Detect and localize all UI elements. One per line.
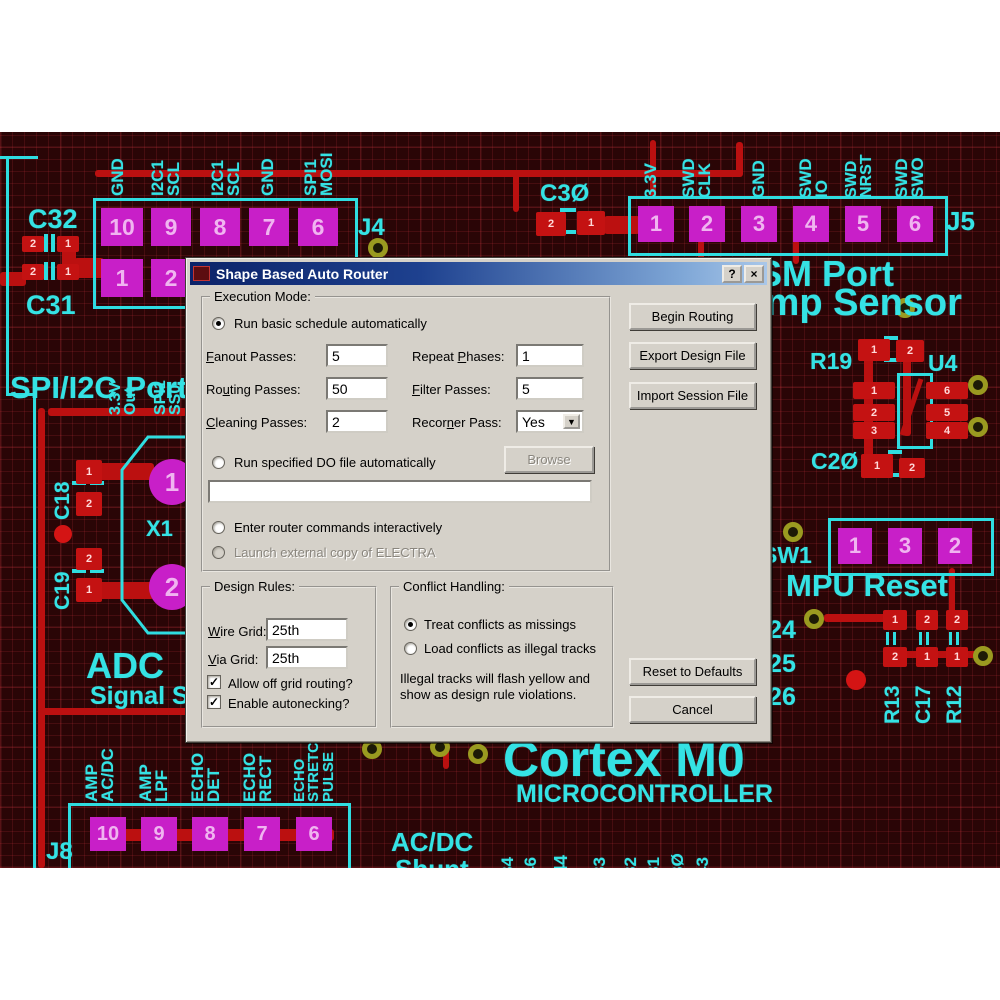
pin-pad[interactable]: 3 — [741, 206, 777, 242]
execution-mode-legend: Execution Mode: — [210, 289, 315, 304]
silk-mark — [51, 234, 55, 252]
pcb-silk-vlabel: C44 — [553, 855, 570, 868]
pcb-silk-label: X1 — [146, 518, 173, 540]
pin-pad[interactable]: 9 — [151, 208, 191, 246]
pcb-silk-vlabel: C19 — [53, 571, 73, 610]
dofile-path-input[interactable] — [208, 480, 592, 503]
pcb-silk-label: MPU Reset — [786, 570, 948, 601]
radio-interactive[interactable] — [212, 521, 225, 534]
smd-pad[interactable]: 1 — [577, 211, 605, 235]
pcb-silk-label: AC/DC — [391, 829, 473, 855]
via-pad — [968, 375, 988, 395]
smd-pad[interactable]: 2 — [22, 264, 44, 280]
silk-mark — [919, 632, 922, 645]
recorner-pass-dropdown[interactable]: Yes ▼ — [516, 410, 584, 433]
pcb-silk-label: C31 — [26, 292, 76, 319]
pin-pad[interactable]: 1 — [638, 206, 674, 242]
copper-trace — [98, 582, 154, 599]
smd-pad[interactable]: 1 — [861, 454, 893, 478]
pin-pad[interactable]: 1 — [838, 528, 872, 564]
cancel-button[interactable]: Cancel — [629, 696, 756, 723]
via-pad — [783, 522, 803, 542]
pin-pad[interactable]: 2 — [689, 206, 725, 242]
radio-conflicts-illegal[interactable] — [404, 642, 417, 655]
pcb-silk-vlabel: 43 — [695, 857, 711, 868]
dialog-titlebar[interactable]: Shape Based Auto Router ? × — [190, 262, 767, 285]
fanout-passes-input[interactable]: 5 — [326, 344, 388, 367]
pcb-silk-label: MICROCONTROLLER — [516, 782, 773, 807]
smd-pad[interactable]: 1 — [916, 647, 938, 667]
pcb-silk-vlabel: SWD CLK — [681, 158, 713, 198]
smd-pad[interactable]: 2 — [853, 404, 895, 421]
pcb-silk-label: J8 — [46, 840, 73, 864]
radio-conflicts-illegal-label: Load conflicts as illegal tracks — [424, 641, 596, 656]
pin-pad[interactable]: 10 — [90, 817, 126, 851]
design-rules-legend: Design Rules: — [210, 579, 299, 594]
offgrid-checkbox[interactable]: ✓ — [207, 675, 221, 689]
smd-pad[interactable]: 1 — [57, 236, 79, 252]
smd-pad[interactable]: 2 — [536, 212, 566, 236]
pin-pad[interactable]: 4 — [793, 206, 829, 242]
fanout-passes-label: Fanout Passes: — [206, 349, 296, 364]
pcb-silk-label: J5 — [946, 208, 975, 234]
pin-pad[interactable]: 1 — [101, 259, 143, 297]
pin-pad[interactable]: 8 — [192, 817, 228, 851]
conflict-handling-legend: Conflict Handling: — [399, 579, 509, 594]
pcb-silk-label: R19 — [810, 350, 852, 373]
copper-trace — [824, 614, 888, 622]
pin-pad[interactable]: 6 — [298, 208, 338, 246]
router-app-icon — [193, 266, 210, 281]
pcb-silk-vlabel: 31 — [646, 857, 662, 868]
smd-pad[interactable]: 2 — [946, 610, 968, 630]
dialog-title: Shape Based Auto Router — [216, 266, 720, 282]
pcb-silk-vlabel: 3.3V — [643, 163, 659, 198]
pcb-silk-vlabel: AMP AC/DC — [84, 748, 116, 802]
pcb-silk-vlabel: I2C1 SCL — [150, 160, 182, 196]
smd-pad[interactable]: 2 — [76, 492, 102, 516]
pcb-silk-vlabel: C18 — [53, 481, 73, 520]
smd-pad[interactable]: 1 — [946, 647, 968, 667]
silk-mark — [886, 632, 889, 645]
screenshot-stage: 2121211212365412122211122110987612123456… — [0, 0, 1000, 1000]
conflict-note-line2: show as design rule violations. — [400, 687, 576, 702]
silk-mark — [893, 632, 896, 645]
radio-run-dofile-label: Run specified DO file automatically — [234, 455, 436, 470]
pcb-silk-vlabel: R12 — [945, 685, 965, 724]
radio-conflicts-missings-label: Treat conflicts as missings — [424, 617, 576, 632]
import-session-file-button[interactable]: Import Session File — [629, 382, 756, 409]
pcb-silk-vlabel: ECHO DET — [190, 753, 222, 802]
silk-mark — [33, 393, 36, 868]
wire-grid-input[interactable]: 25th — [266, 618, 348, 641]
pcb-silk-vlabel: C17 — [914, 685, 934, 724]
smd-pad[interactable]: 2 — [916, 610, 938, 630]
pcb-silk-label: C3Ø — [540, 182, 589, 206]
copper-trace — [513, 170, 519, 212]
help-button[interactable]: ? — [722, 265, 742, 283]
smd-pad[interactable]: 2 — [76, 548, 102, 570]
pcb-silk-vlabel: 32 — [623, 857, 639, 868]
smd-pad[interactable]: 1 — [858, 339, 890, 361]
smd-pad[interactable]: 1 — [57, 264, 79, 280]
via-pad — [973, 646, 993, 666]
radio-electra-label: Launch external copy of ELECTRA — [234, 545, 436, 560]
silk-mark — [6, 156, 9, 396]
cleaning-passes-label: Cleaning Passes: — [206, 415, 307, 430]
smd-pad[interactable]: 2 — [896, 340, 924, 362]
pcb-silk-vlabel: GND — [751, 160, 767, 198]
conflict-handling-group: Conflict Handling: — [390, 586, 614, 728]
pcb-silk-vlabel: SWD NRST — [844, 154, 874, 198]
filter-passes-label: Filter Passes: — [412, 382, 491, 397]
smd-pad[interactable]: 2 — [899, 458, 925, 478]
smd-pad[interactable]: 6 — [926, 382, 968, 399]
routing-passes-label: Routing Passes: — [206, 382, 301, 397]
silk-mark — [956, 632, 959, 645]
radio-interactive-label: Enter router commands interactively — [234, 520, 442, 535]
via-grid-label: Via Grid: — [208, 652, 258, 667]
pcb-silk-vlabel: AMP LPF — [138, 764, 170, 802]
cleaning-passes-input[interactable]: 2 — [326, 410, 388, 433]
copper-trace — [38, 408, 45, 868]
autoneck-checkbox-label: Enable autonecking? — [228, 696, 349, 711]
pin-pad[interactable]: 6 — [897, 206, 933, 242]
radio-conflicts-missings[interactable] — [404, 618, 417, 631]
repeat-phases-input[interactable]: 1 — [516, 344, 584, 367]
pcb-silk-label: C2Ø — [811, 450, 858, 473]
reset-to-defaults-button[interactable]: Reset to Defaults — [629, 658, 756, 685]
copper-dot — [846, 670, 866, 690]
pcb-silk-vlabel: ECHO RECT — [242, 753, 274, 802]
offgrid-checkbox-label: Allow off grid routing? — [228, 676, 353, 691]
routing-passes-input[interactable]: 50 — [326, 377, 388, 400]
pin-pad[interactable]: 8 — [200, 208, 240, 246]
pin-pad[interactable]: 10 — [101, 208, 143, 246]
smd-pad[interactable]: 3 — [853, 422, 895, 439]
via-pad — [368, 238, 388, 258]
via-pad — [804, 609, 824, 629]
radio-electra — [212, 546, 225, 559]
copper-dot — [54, 525, 72, 543]
smd-pad[interactable]: 1 — [853, 382, 895, 399]
smd-pad[interactable]: 1 — [76, 460, 102, 484]
radio-run-dofile[interactable] — [212, 456, 225, 469]
pin-pad[interactable]: 3 — [888, 528, 922, 564]
silk-mark — [949, 632, 952, 645]
via-pad — [968, 417, 988, 437]
recorner-pass-label: Recorner Pass: — [412, 415, 502, 430]
smd-pad[interactable]: 4 — [926, 422, 968, 439]
pin-pad[interactable]: 7 — [249, 208, 289, 246]
smd-pad[interactable]: 1 — [76, 578, 102, 602]
silk-mark — [44, 234, 48, 252]
pcb-silk-vlabel: I2C1 SCL — [210, 160, 242, 196]
conflict-note-line1: Illegal tracks will flash yellow and — [400, 671, 590, 686]
pcb-silk-vlabel: GND — [110, 158, 126, 196]
export-design-file-button[interactable]: Export Design File — [629, 342, 756, 369]
pcb-silk-vlabel: 3.3V Out — [108, 382, 138, 415]
browse-button: Browse — [504, 446, 594, 473]
silk-mark — [51, 262, 55, 280]
pin-pad[interactable]: 2 — [938, 528, 972, 564]
begin-routing-button[interactable]: Begin Routing — [629, 303, 756, 330]
via-pad — [468, 744, 488, 764]
pcb-silk-vlabel: 46 — [523, 857, 539, 868]
copper-trace — [98, 463, 154, 480]
silk-mark — [926, 632, 929, 645]
pcb-silk-label: ADC — [86, 648, 164, 684]
smd-pad[interactable]: 5 — [926, 404, 968, 421]
pcb-silk-vlabel: SPI1 MOSI — [303, 153, 335, 196]
pcb-silk-vlabel: GND — [260, 158, 276, 196]
autoneck-checkbox[interactable]: ✓ — [207, 695, 221, 709]
chevron-down-icon[interactable]: ▼ — [563, 414, 580, 429]
pcb-silk-label: J4 — [358, 216, 385, 240]
pcb-silk-vlabel: R13 — [883, 685, 903, 724]
pin-pad[interactable]: 7 — [244, 817, 280, 851]
smd-pad[interactable]: 2 — [883, 647, 907, 667]
pcb-silk-vlabel: 34 — [500, 857, 516, 868]
pin-pad[interactable]: 9 — [141, 817, 177, 851]
pcb-silk-vlabel: 33 — [592, 857, 608, 868]
repeat-phases-label: Repeat Phases: — [412, 349, 505, 364]
close-icon[interactable]: × — [744, 265, 764, 283]
pcb-silk-vlabel: SWD IO — [798, 158, 830, 198]
pcb-silk-vlabel: SWD SWO — [894, 157, 926, 198]
pcb-silk-vlabel: 3Ø — [670, 853, 686, 868]
via-grid-input[interactable]: 25th — [266, 646, 348, 669]
pin-pad[interactable]: 6 — [296, 817, 332, 851]
smd-pad[interactable]: 1 — [883, 610, 907, 630]
auto-router-dialog: Shape Based Auto Router ? × Execution Mo… — [185, 257, 772, 743]
silk-mark — [44, 262, 48, 280]
pcb-silk-vlabel: SPI1 SS0 — [153, 380, 183, 415]
filter-passes-input[interactable]: 5 — [516, 377, 584, 400]
radio-run-basic[interactable] — [212, 317, 225, 330]
pcb-silk-label: U4 — [928, 352, 957, 375]
pin-pad[interactable]: 5 — [845, 206, 881, 242]
pcb-silk-label: C32 — [28, 206, 78, 233]
pcb-silk-label: Shunt — [395, 856, 469, 868]
copper-trace — [736, 142, 743, 177]
wire-grid-label: Wire Grid: — [208, 624, 267, 639]
radio-run-basic-label: Run basic schedule automatically — [234, 316, 427, 331]
smd-pad[interactable]: 2 — [22, 236, 44, 252]
